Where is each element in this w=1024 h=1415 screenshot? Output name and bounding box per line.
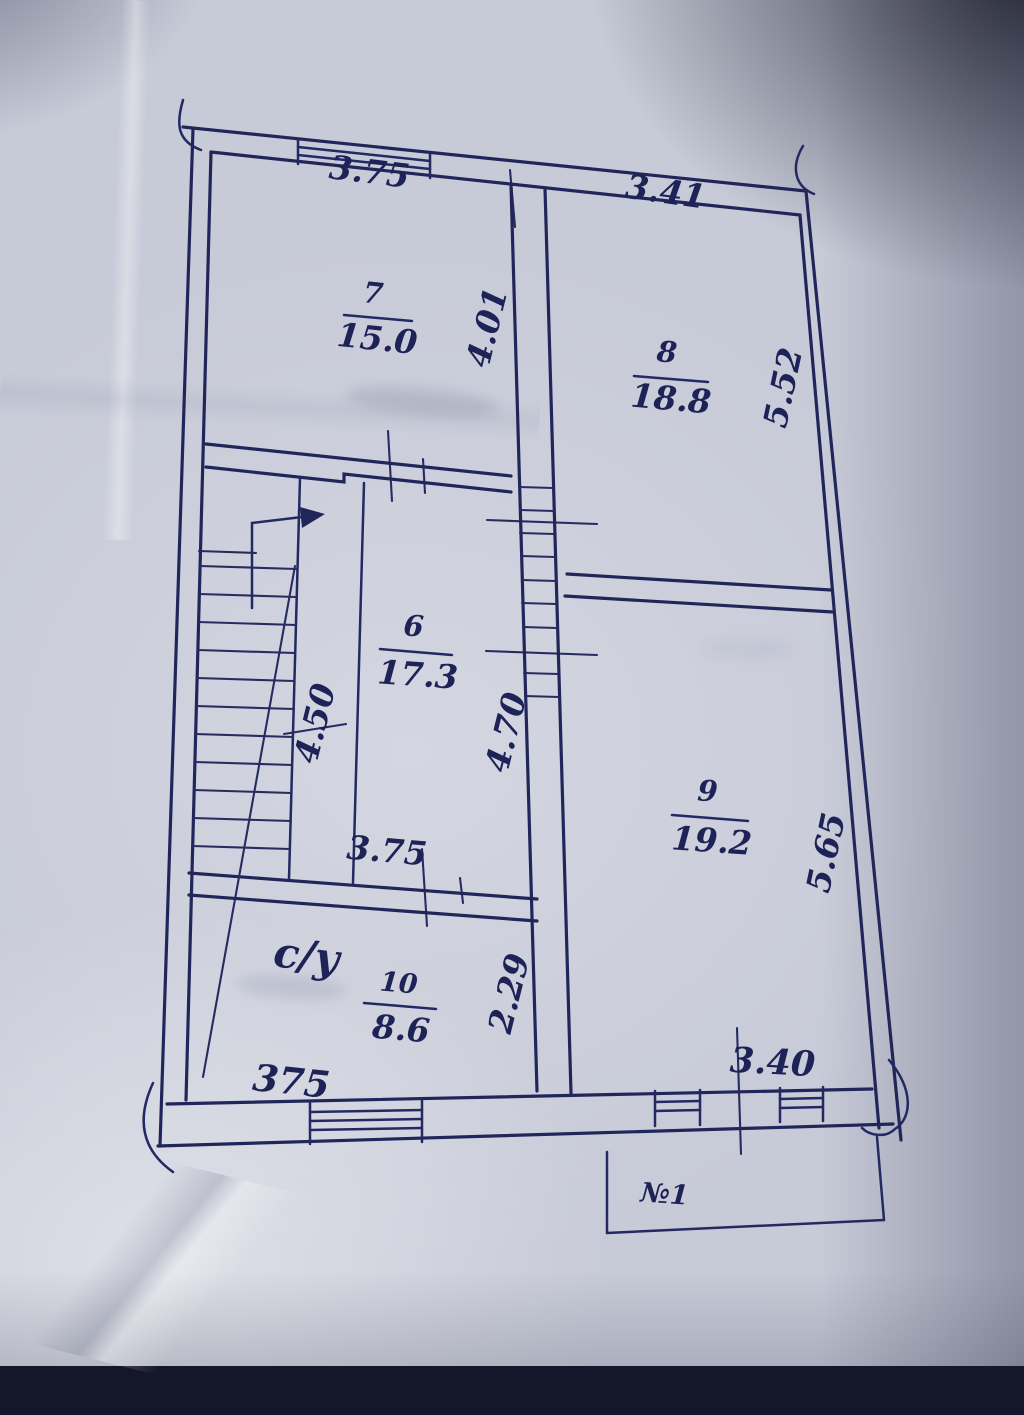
- dim-balcony-width: 3.40: [729, 1040, 816, 1085]
- room9-area: 19.2: [670, 818, 753, 863]
- room7-area: 15.0: [335, 315, 419, 362]
- labels: 3.75 3.41 7 15.0 4.01 8 18.8 5.52 6 17.3…: [251, 147, 854, 1211]
- stair-direction-arrow: [252, 507, 325, 608]
- room9-number: 9: [696, 773, 719, 808]
- room6-area: 17.3: [376, 652, 459, 697]
- room6-number: 6: [402, 608, 425, 643]
- dim-top-right: 3.41: [623, 167, 708, 217]
- dim-room6-bottom: 3.75: [345, 828, 428, 874]
- room10-number: 10: [379, 966, 419, 1000]
- balcony-label: №1: [639, 1177, 690, 1211]
- floor-plan-photo: 3.75 3.41 7 15.0 4.01 8 18.8 5.52 6 17.3…: [0, 0, 1024, 1366]
- dim-top-left: 3.75: [327, 147, 412, 196]
- dim-room7-depth: 4.01: [458, 284, 515, 371]
- dim-room9-side: 5.65: [798, 809, 853, 896]
- window-bottom-center: [655, 1090, 700, 1126]
- outer-walls: [158, 127, 901, 1146]
- room7-number: 7: [361, 275, 385, 311]
- dim-room6-side: 4.70: [477, 688, 534, 775]
- dim-bottom-left: 375: [251, 1055, 332, 1107]
- dim-room8-side: 5.52: [755, 344, 810, 431]
- staircase: [192, 478, 364, 1077]
- room8-number: 8: [654, 334, 678, 370]
- room10-area: 8.6: [370, 1007, 432, 1051]
- bathroom-label: с/у: [271, 927, 344, 984]
- corner-break-marks: [144, 100, 908, 1172]
- floor-plan-drawing: 3.75 3.41 7 15.0 4.01 8 18.8 5.52 6 17.3…: [0, 0, 1024, 1366]
- room8-area: 18.8: [629, 376, 713, 422]
- dim-room10-side: 2.29: [480, 949, 538, 1037]
